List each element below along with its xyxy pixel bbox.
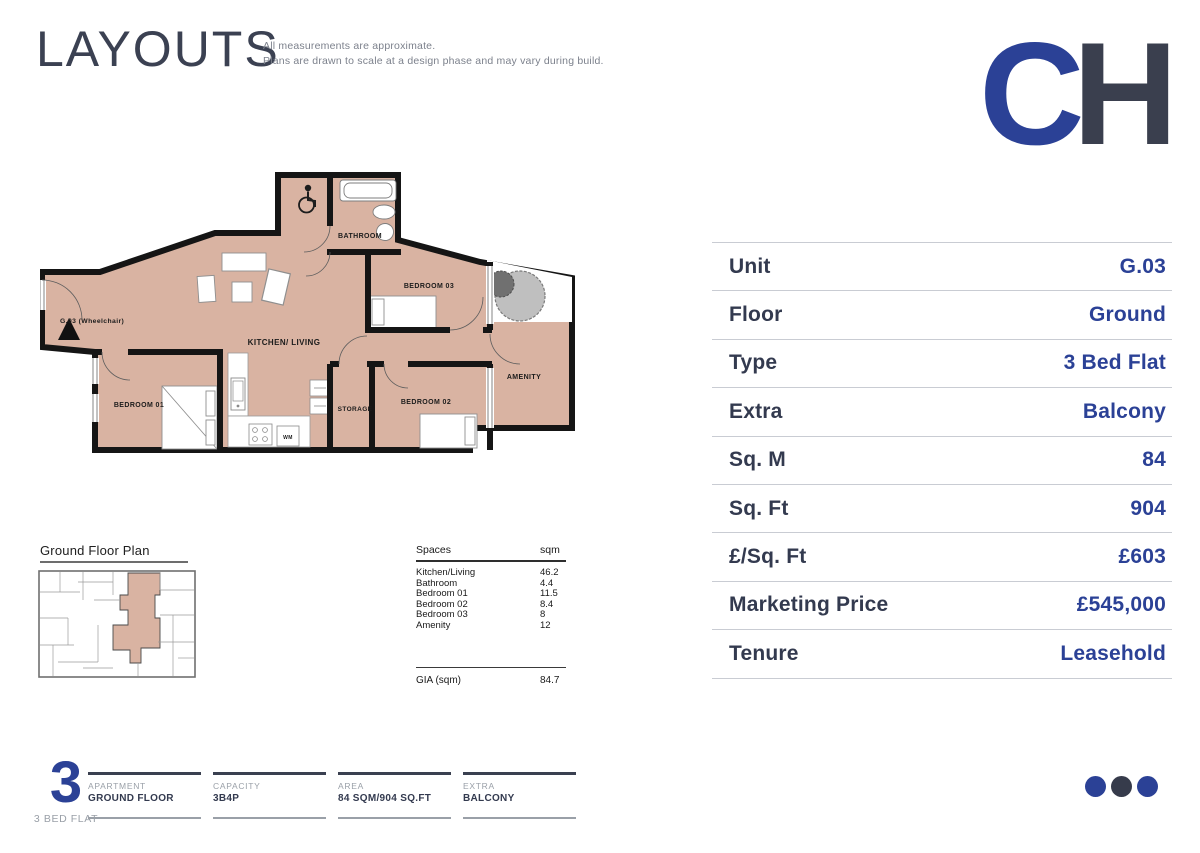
- bed-bedroom03: [370, 296, 436, 328]
- footer-col-capacity: CAPACITY 3B4P: [213, 772, 326, 819]
- info-row-sqft: Sq. Ft 904: [712, 484, 1172, 532]
- disclaimer-line-1: All measurements are approximate.: [263, 39, 604, 54]
- hob-icon: [249, 424, 272, 445]
- info-row-price-per-sqft: £/Sq. Ft £603: [712, 532, 1172, 580]
- info-row-floor: Floor Ground: [712, 290, 1172, 338]
- floor-plan: WM: [40, 168, 580, 464]
- company-logo: CH: [956, 28, 1166, 159]
- label-bedroom03: BEDROOM 03: [404, 283, 454, 290]
- spaces-total-row: GIA (sqm) 84.7: [416, 675, 566, 686]
- logo-letter-c: C: [979, 12, 1072, 175]
- unit-info-table: Unit G.03 Floor Ground Type 3 Bed Flat E…: [712, 242, 1172, 679]
- minimap-title: Ground Floor Plan: [40, 543, 150, 558]
- minimap-title-rule: [40, 561, 188, 563]
- gia-label: GIA (sqm): [416, 675, 540, 686]
- spaces-header-sqm: sqm: [540, 544, 566, 556]
- info-row-extra: Extra Balcony: [712, 387, 1172, 435]
- pagination-dot-3: [1137, 776, 1158, 797]
- spaces-row: Amenity 12: [416, 621, 566, 632]
- spaces-total-rule: [416, 667, 566, 668]
- spaces-row: Kitchen/Living 46.2: [416, 568, 566, 579]
- page-title: LAYOUTS: [36, 20, 280, 78]
- spaces-header-rule: [416, 560, 566, 562]
- disclaimer-line-2: Plans are drawn to scale at a design pha…: [263, 54, 604, 69]
- info-row-type: Type 3 Bed Flat: [712, 339, 1172, 387]
- spaces-header-name: Spaces: [416, 544, 540, 556]
- label-bedroom01: BEDROOM 01: [114, 402, 164, 409]
- pagination-dot-2: [1111, 776, 1132, 797]
- info-row-sqm: Sq. M 84: [712, 436, 1172, 484]
- spaces-table: Spaces sqm Kitchen/Living 46.2 Bathroom …: [416, 544, 566, 686]
- gia-value: 84.7: [540, 675, 566, 686]
- label-bathroom: BATHROOM: [338, 233, 382, 240]
- footer-col-apartment: APARTMENT GROUND FLOOR: [88, 772, 201, 819]
- label-storage: STORAGE: [338, 406, 373, 413]
- label-unit-id: G.03 (Wheelchair): [60, 318, 124, 325]
- logo-letter-h: H: [1073, 12, 1166, 175]
- label-amenity: AMENITY: [507, 374, 541, 381]
- washing-machine-icon: WM: [277, 426, 299, 446]
- label-bedroom02: BEDROOM 02: [401, 399, 451, 406]
- bed-bedroom02: [420, 414, 477, 448]
- pagination-dot-1: [1085, 776, 1106, 797]
- label-kitchen-living: KITCHEN/ LIVING: [248, 338, 321, 347]
- info-row-unit: Unit G.03: [712, 242, 1172, 290]
- disclaimer-text: All measurements are approximate. Plans …: [263, 39, 604, 69]
- footer-col-area: AREA 84 SQM/904 SQ.FT: [338, 772, 451, 819]
- info-row-tenure: Tenure Leasehold: [712, 629, 1172, 677]
- info-row-marketing-price: Marketing Price £545,000: [712, 581, 1172, 629]
- footer-col-extra: EXTRA BALCONY: [463, 772, 576, 819]
- minimap: [38, 570, 196, 678]
- bed-bedroom01: [162, 386, 217, 449]
- svg-text:WM: WM: [283, 435, 293, 441]
